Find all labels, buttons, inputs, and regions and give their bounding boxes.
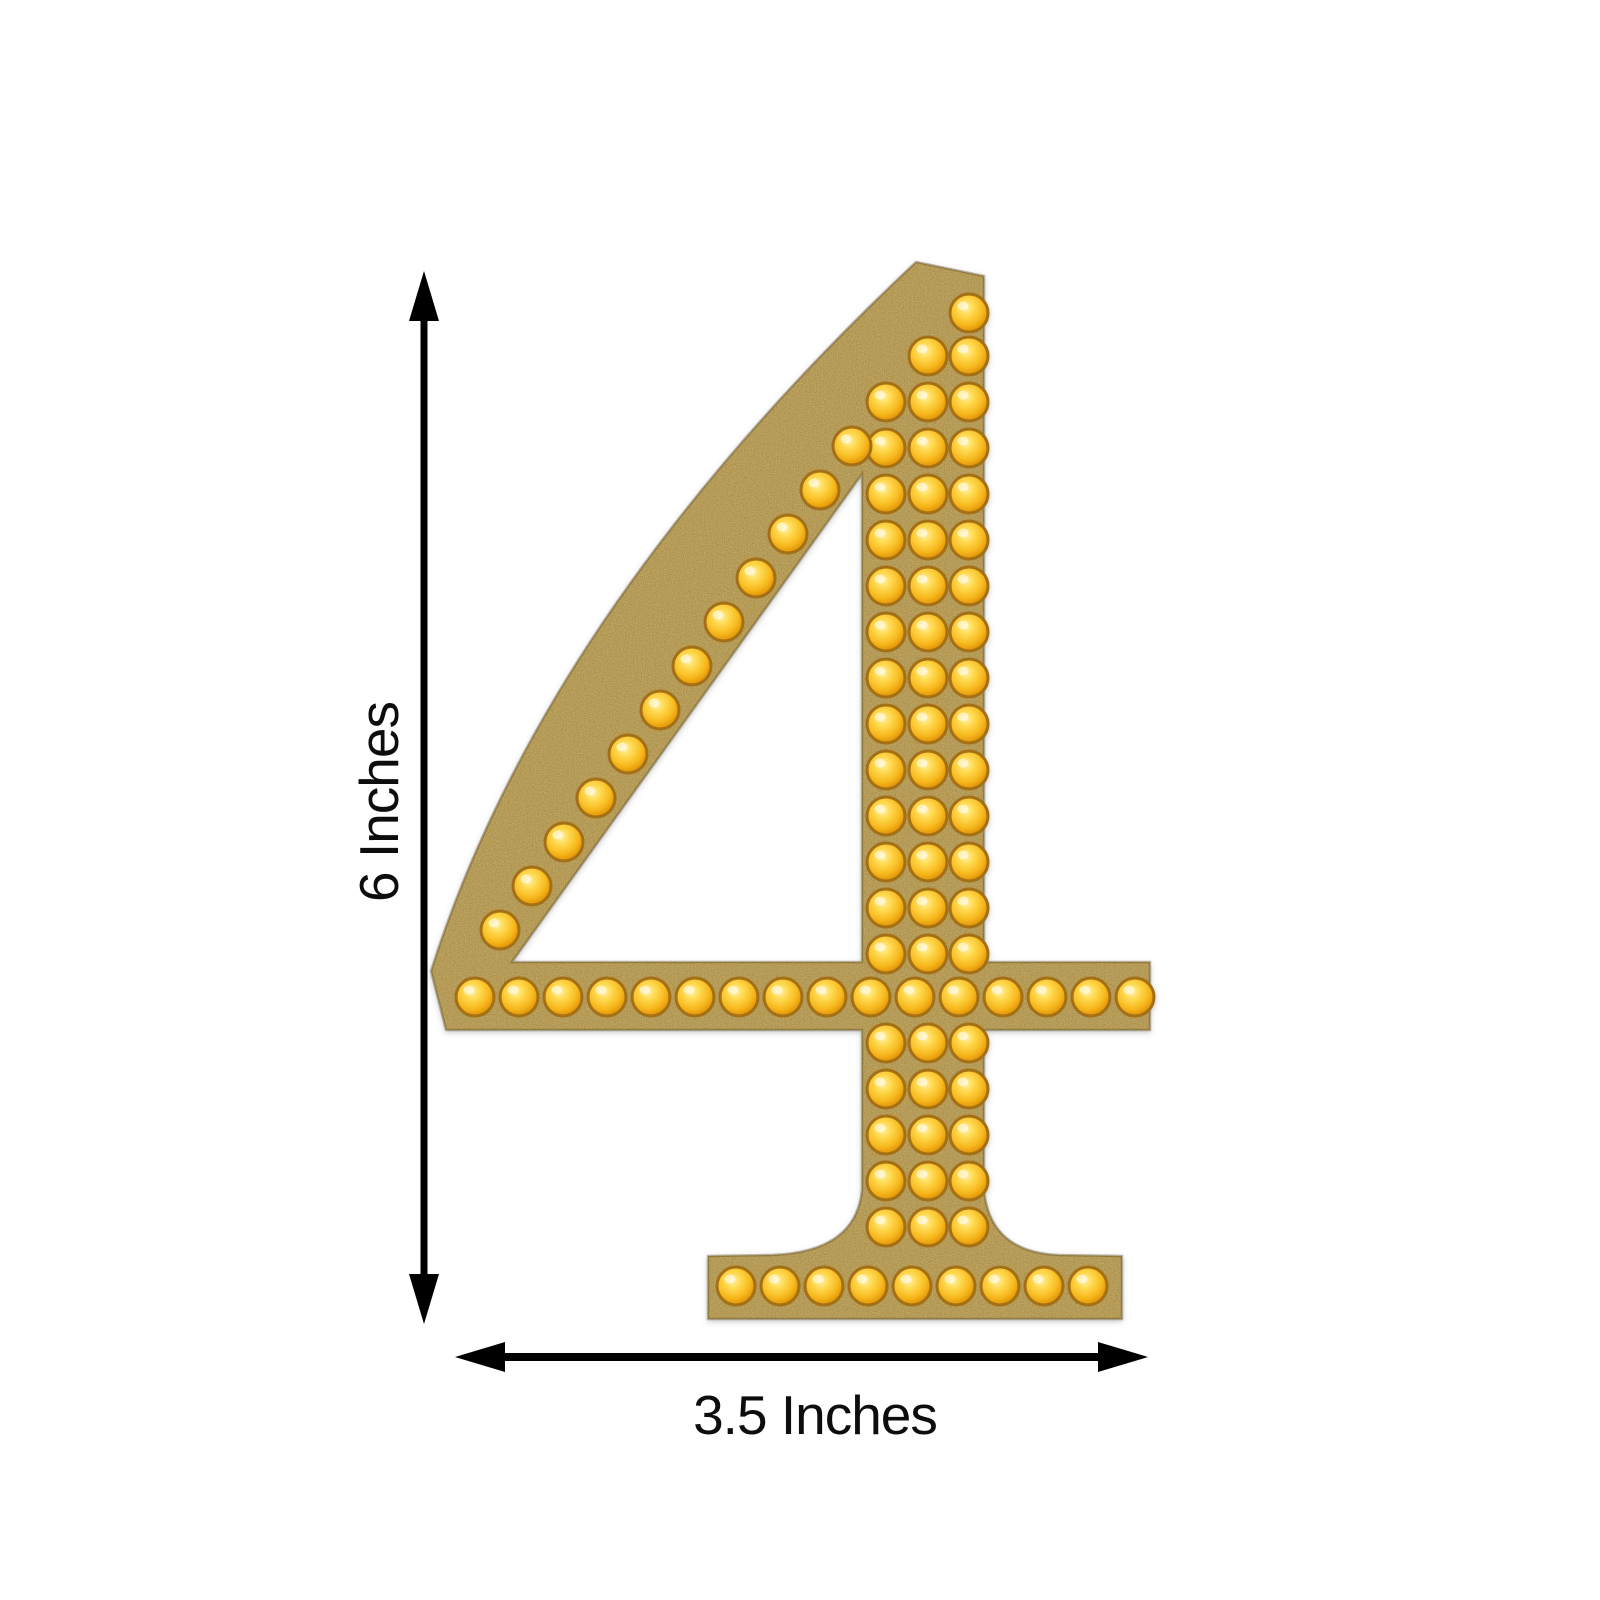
rhinestone xyxy=(867,935,905,973)
rhinestone xyxy=(867,1024,905,1062)
rhinestone xyxy=(867,797,905,835)
rhinestone-highlight xyxy=(553,831,564,840)
rhinestone-highlight xyxy=(816,986,827,995)
diagram-canvas: 6 Inches 3.5 Inches xyxy=(0,0,1600,1600)
rhinestone-highlight xyxy=(958,1170,969,1179)
rhinestone-highlight xyxy=(917,759,928,768)
rhinestone xyxy=(950,1116,988,1154)
rhinestone-highlight xyxy=(640,986,651,995)
rhinestone xyxy=(950,1162,988,1200)
rhinestone xyxy=(808,978,846,1016)
rhinestone-highlight xyxy=(875,437,886,446)
rhinestone-highlight xyxy=(958,943,969,952)
rhinestone xyxy=(456,978,494,1016)
rhinestone-highlight xyxy=(958,391,969,400)
rhinestone-highlight xyxy=(649,699,660,708)
width-dimension-arrow xyxy=(455,1342,1148,1372)
rhinestone-highlight xyxy=(1124,986,1135,995)
rhinestone xyxy=(893,1267,931,1305)
rhinestone xyxy=(867,659,905,697)
glitter-texture xyxy=(415,245,1165,1335)
rhinestone xyxy=(720,978,758,1016)
rhinestone-highlight xyxy=(713,611,724,620)
rhinestone xyxy=(867,1162,905,1200)
rhinestone-highlight xyxy=(521,875,532,884)
rhinestone xyxy=(513,867,551,905)
rhinestone xyxy=(500,978,538,1016)
rhinestone xyxy=(909,337,947,375)
rhinestone xyxy=(867,567,905,605)
rhinestone-highlight xyxy=(917,483,928,492)
rhinestone xyxy=(950,797,988,835)
rhinestone xyxy=(676,978,714,1016)
rhinestone xyxy=(909,797,947,835)
rhinestone-highlight xyxy=(917,943,928,952)
rhinestone-highlight xyxy=(875,483,886,492)
rhinestone xyxy=(909,429,947,467)
rhinestone-highlight xyxy=(684,986,695,995)
rhinestone-highlight xyxy=(681,655,692,664)
rhinestone xyxy=(673,647,711,685)
rhinestone xyxy=(909,659,947,697)
rhinestone xyxy=(867,705,905,743)
rhinestone-highlight xyxy=(596,986,607,995)
rhinestone-highlight xyxy=(875,805,886,814)
rhinestone xyxy=(950,475,988,513)
rhinestone xyxy=(937,1267,975,1305)
rhinestone-highlight xyxy=(875,667,886,676)
rhinestone-highlight xyxy=(992,986,1003,995)
rhinestone-highlight xyxy=(958,667,969,676)
rhinestone xyxy=(896,978,934,1016)
rhinestone xyxy=(737,559,775,597)
rhinestone-highlight xyxy=(841,435,852,444)
rhinestone-highlight xyxy=(917,713,928,722)
rhinestone xyxy=(588,978,626,1016)
rhinestone-highlight xyxy=(917,345,928,354)
rhinestone xyxy=(950,429,988,467)
height-dimension-arrow xyxy=(409,271,439,1324)
rhinestone xyxy=(909,935,947,973)
rhinestone xyxy=(909,521,947,559)
rhinestone xyxy=(984,978,1022,1016)
rhinestone xyxy=(805,1267,843,1305)
rhinestone xyxy=(632,978,670,1016)
rhinestone xyxy=(764,978,802,1016)
rhinestone-highlight xyxy=(464,986,475,995)
rhinestone-highlight xyxy=(1080,986,1091,995)
rhinestone xyxy=(867,1208,905,1246)
rhinestone xyxy=(867,383,905,421)
arrowhead-up-icon xyxy=(409,271,439,321)
rhinestone xyxy=(909,751,947,789)
rhinestone-highlight xyxy=(958,302,969,311)
height-dimension-label: 6 Inches xyxy=(348,702,410,902)
rhinestone xyxy=(867,1070,905,1108)
rhinestone-highlight xyxy=(917,575,928,584)
rhinestone xyxy=(867,475,905,513)
rhinestone-highlight xyxy=(917,1078,928,1087)
rhinestone-highlight xyxy=(875,1124,886,1133)
rhinestone xyxy=(909,1070,947,1108)
rhinestone xyxy=(909,1024,947,1062)
rhinestone-highlight xyxy=(958,759,969,768)
rhinestone xyxy=(950,935,988,973)
rhinestone-highlight xyxy=(958,621,969,630)
rhinestone xyxy=(909,843,947,881)
rhinestone-highlight xyxy=(917,1032,928,1041)
rhinestone-highlight xyxy=(958,437,969,446)
rhinestone-highlight xyxy=(813,1275,824,1284)
rhinestone-highlight xyxy=(958,1078,969,1087)
rhinestone xyxy=(909,1208,947,1246)
arrowhead-down-icon xyxy=(409,1274,439,1324)
rhinestone-highlight xyxy=(875,529,886,538)
rhinestone-highlight xyxy=(1036,986,1047,995)
rhinestone xyxy=(950,294,988,332)
rhinestone xyxy=(940,978,978,1016)
rhinestone-highlight xyxy=(958,1124,969,1133)
rhinestone-highlight xyxy=(875,391,886,400)
rhinestone-highlight xyxy=(958,713,969,722)
rhinestone xyxy=(909,567,947,605)
rhinestone-highlight xyxy=(958,897,969,906)
rhinestone-highlight xyxy=(958,483,969,492)
rhinestone xyxy=(950,337,988,375)
rhinestone-highlight xyxy=(958,851,969,860)
rhinestone-highlight xyxy=(875,897,886,906)
rhinestone xyxy=(867,1116,905,1154)
rhinestone xyxy=(867,751,905,789)
rhinestone xyxy=(1028,978,1066,1016)
rhinestone-highlight xyxy=(725,1275,736,1284)
rhinestone-highlight xyxy=(958,529,969,538)
rhinestone-highlight xyxy=(917,805,928,814)
width-dimension-label: 3.5 Inches xyxy=(693,1384,937,1446)
rhinestone-highlight xyxy=(958,805,969,814)
rhinestone xyxy=(769,515,807,553)
rhinestone xyxy=(761,1267,799,1305)
rhinestone-highlight xyxy=(777,523,788,532)
rhinestone-highlight xyxy=(917,897,928,906)
rhinestone-highlight xyxy=(917,529,928,538)
rhinestone-highlight xyxy=(917,1124,928,1133)
rhinestone-highlight xyxy=(958,1032,969,1041)
rhinestone xyxy=(867,429,905,467)
rhinestone-highlight xyxy=(552,986,563,995)
rhinestone-highlight xyxy=(745,567,756,576)
rhinestone xyxy=(833,427,871,465)
rhinestone xyxy=(544,978,582,1016)
rhinestone xyxy=(705,603,743,641)
rhinestone xyxy=(909,705,947,743)
rhinestone xyxy=(867,843,905,881)
arrowhead-right-icon xyxy=(1098,1342,1148,1372)
rhinestone xyxy=(909,1162,947,1200)
rhinestone-highlight xyxy=(917,437,928,446)
rhinestone xyxy=(950,751,988,789)
rhinestone-highlight xyxy=(769,1275,780,1284)
rhinestone xyxy=(1072,978,1110,1016)
rhinestone xyxy=(717,1267,755,1305)
rhinestone xyxy=(1116,978,1154,1016)
rhinestone xyxy=(641,691,679,729)
rhinestone-highlight xyxy=(875,1170,886,1179)
rhinestone-highlight xyxy=(772,986,783,995)
rhinestone xyxy=(1025,1267,1063,1305)
rhinestone-highlight xyxy=(585,787,596,796)
rhinestone-highlight xyxy=(917,391,928,400)
rhinestone-highlight xyxy=(901,1275,912,1284)
rhinestone xyxy=(981,1267,1019,1305)
rhinestone-highlight xyxy=(875,851,886,860)
rhinestone xyxy=(950,1208,988,1246)
rhinestone-highlight xyxy=(989,1275,1000,1284)
rhinestone-highlight xyxy=(857,1275,868,1284)
rhinestone-highlight xyxy=(875,759,886,768)
rhinestone xyxy=(950,383,988,421)
rhinestone xyxy=(909,383,947,421)
rhinestone xyxy=(909,1116,947,1154)
rhinestone-highlight xyxy=(958,345,969,354)
rhinestone-highlight xyxy=(945,1275,956,1284)
rhinestone xyxy=(950,1024,988,1062)
rhinestone-highlight xyxy=(875,1078,886,1087)
rhinestone xyxy=(852,978,890,1016)
rhinestone xyxy=(950,659,988,697)
rhinestone-highlight xyxy=(958,1216,969,1225)
rhinestone-highlight xyxy=(809,479,820,488)
rhinestone xyxy=(867,521,905,559)
arrowhead-left-icon xyxy=(455,1342,505,1372)
rhinestone-highlight xyxy=(617,743,628,752)
rhinestone-highlight xyxy=(489,919,500,928)
rhinestone-highlight xyxy=(1077,1275,1088,1284)
rhinestone xyxy=(950,843,988,881)
rhinestone-highlight xyxy=(917,1216,928,1225)
rhinestone xyxy=(545,823,583,861)
rhinestone-highlight xyxy=(917,667,928,676)
rhinestone-highlight xyxy=(1033,1275,1044,1284)
rhinestone-highlight xyxy=(875,1032,886,1041)
product-dimension-diagram: 6 Inches 3.5 Inches xyxy=(0,0,1600,1600)
rhinestone xyxy=(909,889,947,927)
rhinestone xyxy=(849,1267,887,1305)
rhinestone xyxy=(867,889,905,927)
rhinestone-highlight xyxy=(508,986,519,995)
rhinestone-highlight xyxy=(875,713,886,722)
rhinestone xyxy=(801,471,839,509)
rhinestone xyxy=(481,911,519,949)
rhinestone-highlight xyxy=(875,575,886,584)
rhinestone xyxy=(867,613,905,651)
rhinestone xyxy=(909,475,947,513)
rhinestone-highlight xyxy=(917,621,928,630)
rhinestone-highlight xyxy=(875,943,886,952)
rhinestone xyxy=(950,705,988,743)
rhinestone-highlight xyxy=(917,1170,928,1179)
rhinestone-highlight xyxy=(728,986,739,995)
rhinestone xyxy=(577,779,615,817)
rhinestone-highlight xyxy=(958,575,969,584)
rhinestone-highlight xyxy=(904,986,915,995)
rhinestone xyxy=(909,613,947,651)
rhinestone xyxy=(950,613,988,651)
rhinestone xyxy=(609,735,647,773)
rhinestone-highlight xyxy=(875,1216,886,1225)
rhinestone xyxy=(1069,1267,1107,1305)
rhinestone-highlight xyxy=(860,986,871,995)
rhinestone-highlight xyxy=(917,851,928,860)
rhinestone xyxy=(950,889,988,927)
rhinestone-highlight xyxy=(948,986,959,995)
rhinestone xyxy=(950,521,988,559)
numeral-sticker xyxy=(415,245,1165,1335)
rhinestone xyxy=(950,567,988,605)
rhinestone xyxy=(950,1070,988,1108)
rhinestone-highlight xyxy=(875,621,886,630)
